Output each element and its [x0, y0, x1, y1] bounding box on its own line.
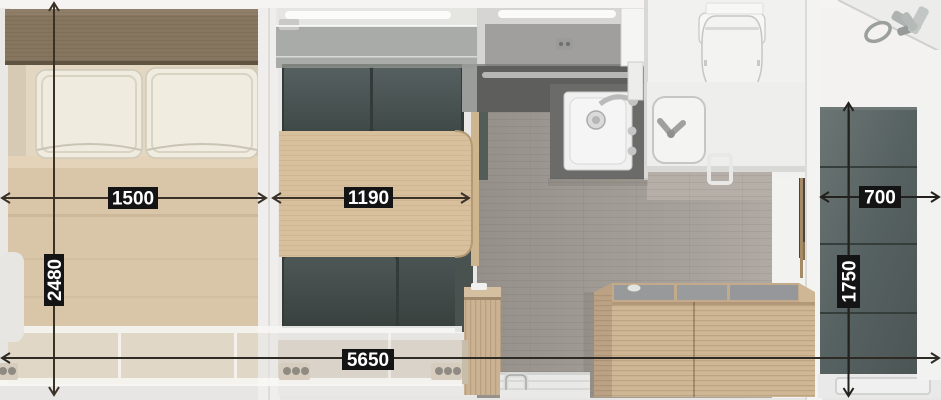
svg-text:1500: 1500 — [112, 189, 154, 210]
svg-text:2480: 2480 — [45, 259, 66, 301]
svg-text:5650: 5650 — [347, 350, 389, 371]
svg-text:1750: 1750 — [840, 260, 861, 302]
svg-text:1190: 1190 — [348, 188, 389, 209]
svg-text:700: 700 — [864, 188, 896, 209]
